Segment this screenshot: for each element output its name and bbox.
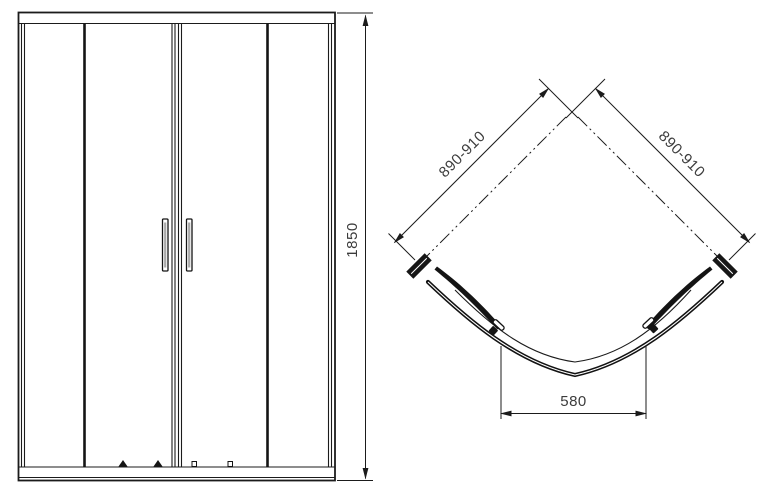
background bbox=[0, 0, 776, 496]
drawing-svg: 1850 890-910 890-910 bbox=[0, 0, 776, 496]
roller-guide-block bbox=[228, 462, 233, 467]
roller-guide-block bbox=[192, 462, 197, 467]
shower-enclosure-technical-drawing: 1850 890-910 890-910 bbox=[0, 0, 776, 496]
opening-dimension-label: 580 bbox=[560, 393, 587, 410]
door-handle-left bbox=[163, 219, 169, 271]
door-handle-right bbox=[187, 219, 193, 271]
height-dimension-label: 1850 bbox=[344, 222, 361, 257]
